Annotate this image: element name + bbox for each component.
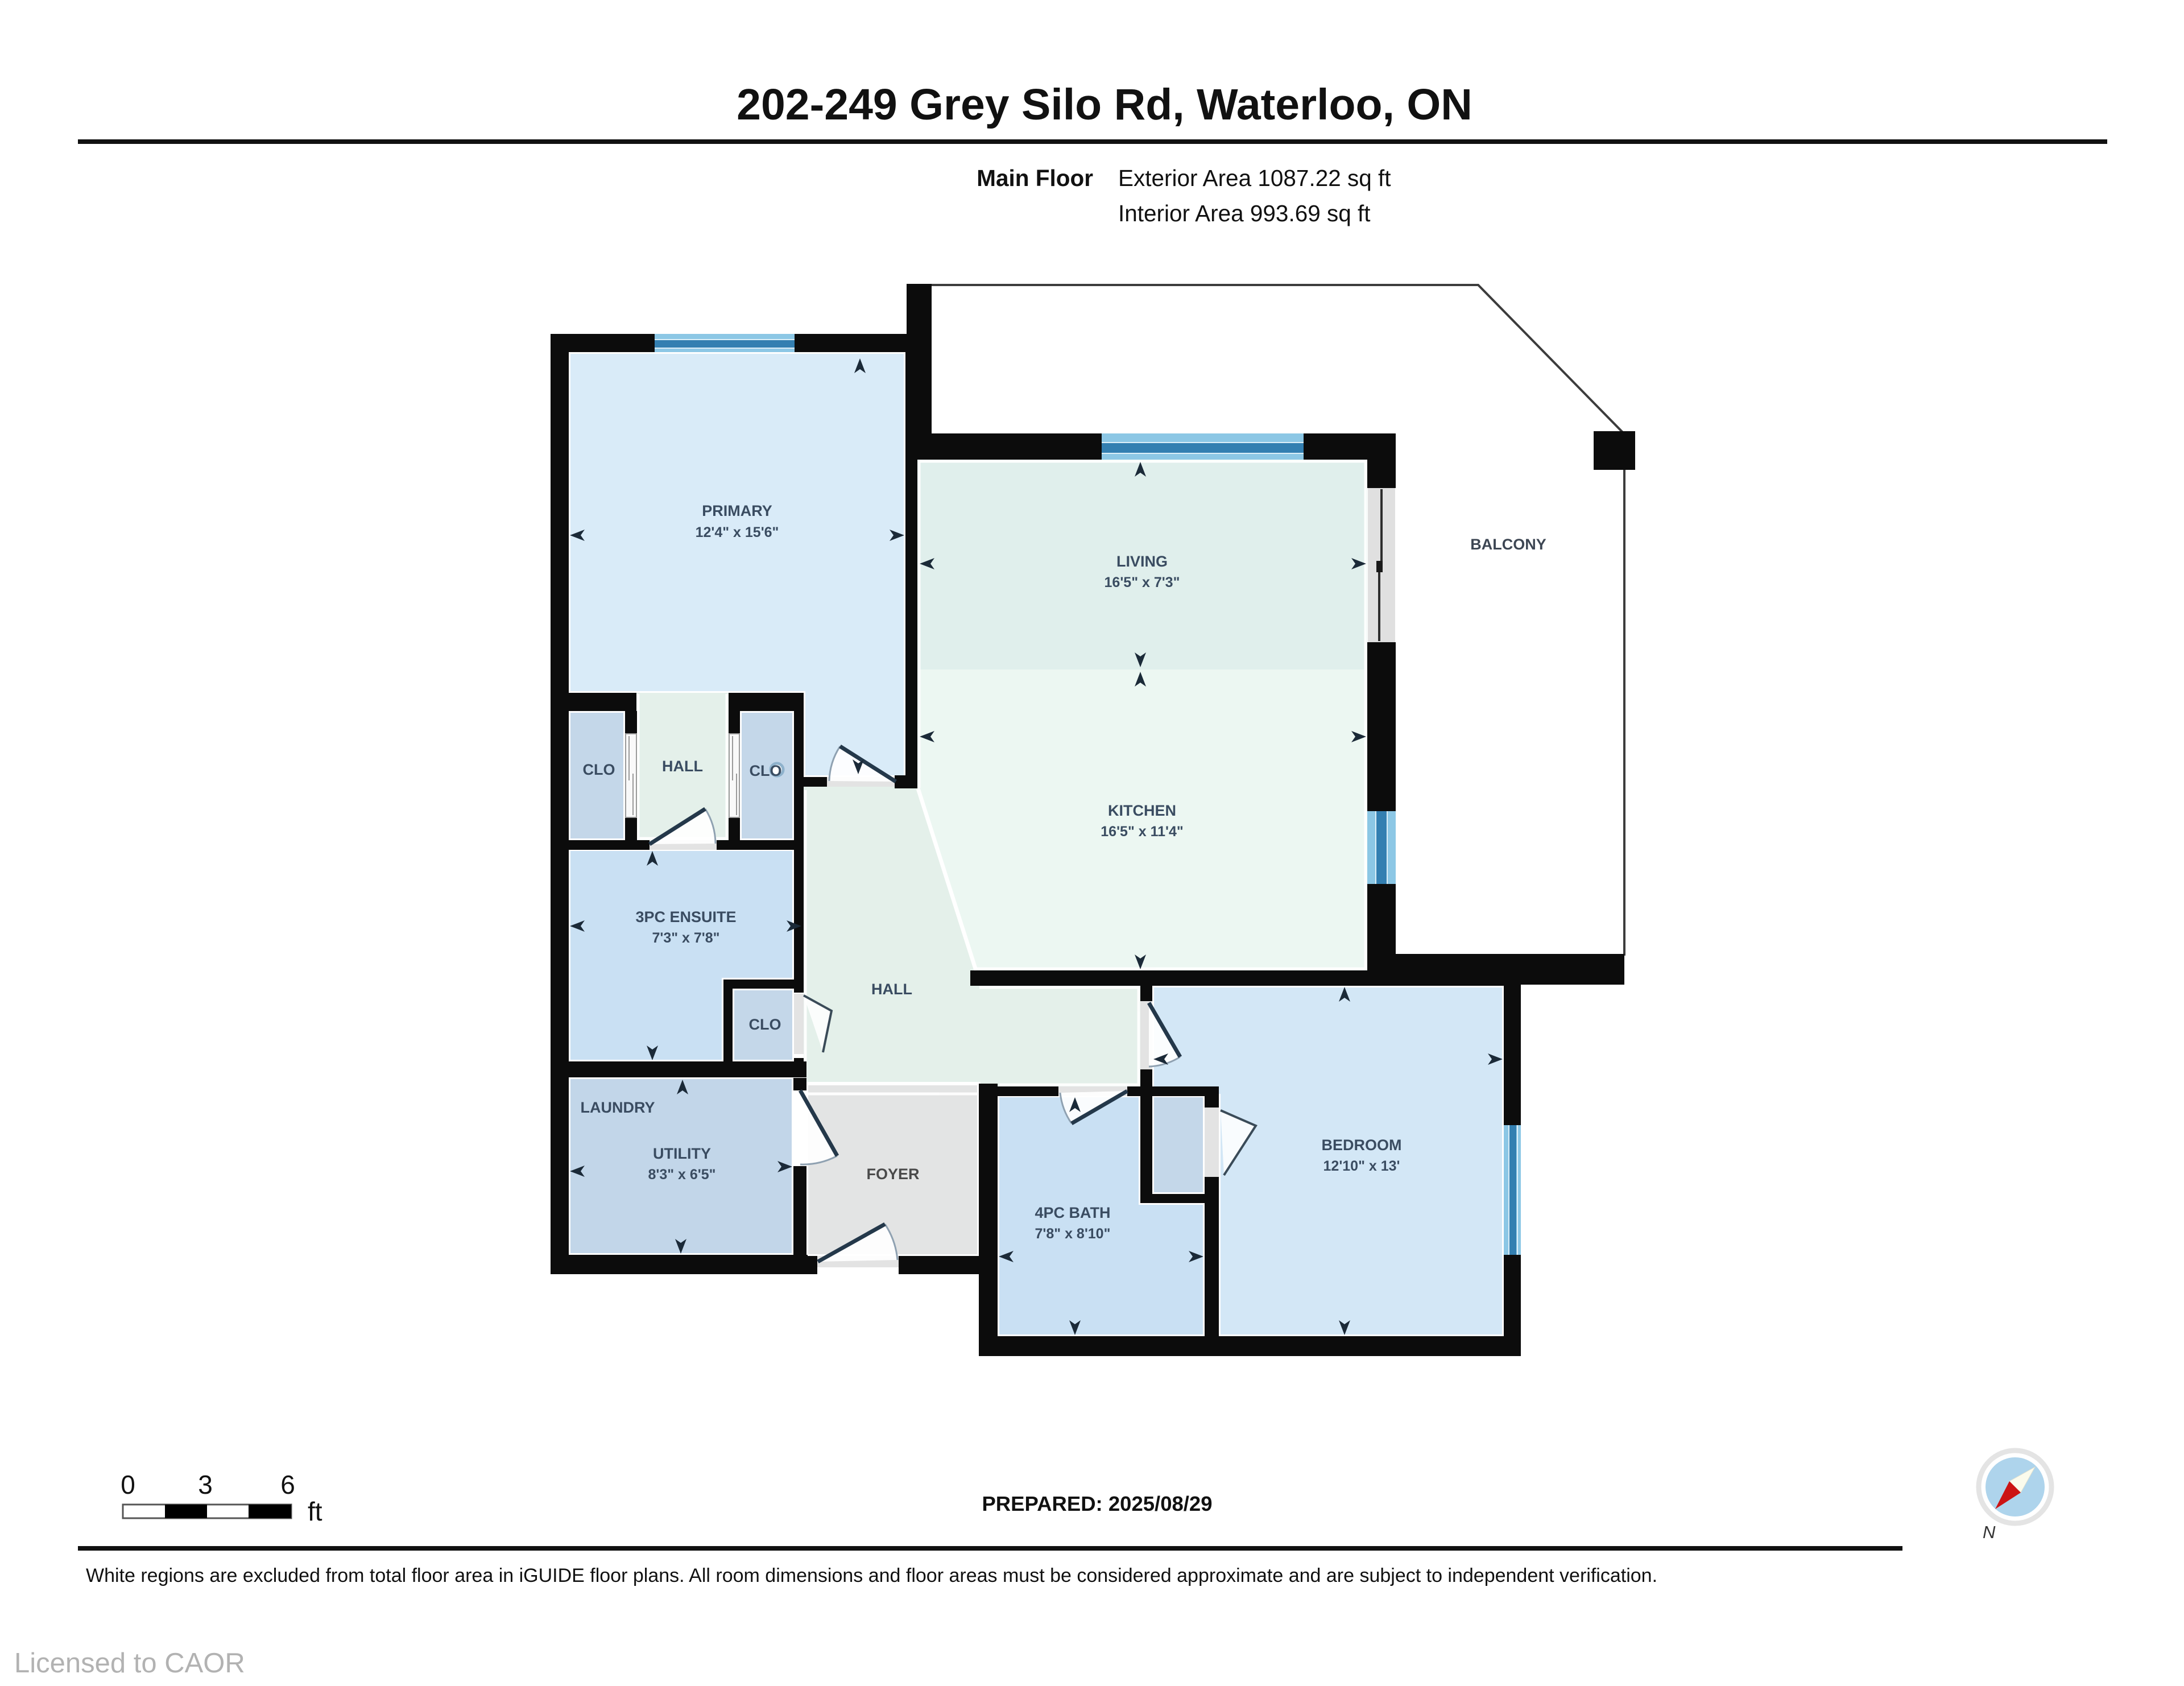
svg-text:202-249 Grey Silo Rd, Waterloo: 202-249 Grey Silo Rd, Waterloo, ON	[737, 80, 1472, 129]
svg-text:White regions are excluded fro: White regions are excluded from total fl…	[86, 1565, 1657, 1586]
svg-text:PREPARED: 2025/08/29: PREPARED: 2025/08/29	[982, 1492, 1212, 1515]
svg-text:8'3" x 6'5": 8'3" x 6'5"	[648, 1167, 715, 1183]
svg-text:ft: ft	[308, 1497, 322, 1526]
svg-text:HALL: HALL	[871, 981, 912, 998]
svg-text:3PC ENSUITE: 3PC ENSUITE	[635, 908, 736, 925]
svg-text:Main Floor: Main Floor	[977, 165, 1093, 191]
svg-text:Licensed to CAOR: Licensed to CAOR	[14, 1648, 245, 1679]
svg-text:Exterior Area 1087.22 sq ft: Exterior Area 1087.22 sq ft	[1118, 165, 1391, 191]
svg-text:BALCONY: BALCONY	[1470, 536, 1546, 553]
svg-text:CLO: CLO	[750, 762, 782, 779]
svg-text:KITCHEN: KITCHEN	[1108, 802, 1176, 819]
svg-text:PRIMARY: PRIMARY	[702, 502, 772, 519]
svg-text:12'4" x 15'6": 12'4" x 15'6"	[696, 524, 779, 540]
svg-text:FOYER: FOYER	[866, 1166, 919, 1183]
svg-text:LIVING: LIVING	[1116, 553, 1168, 570]
svg-text:12'10" x 13': 12'10" x 13'	[1323, 1158, 1400, 1174]
svg-text:UTILITY: UTILITY	[653, 1145, 711, 1162]
svg-text:Interior Area 993.69 sq ft: Interior Area 993.69 sq ft	[1118, 200, 1371, 226]
svg-text:7'8" x 8'10": 7'8" x 8'10"	[1035, 1226, 1111, 1242]
svg-text:0: 0	[121, 1470, 135, 1499]
svg-text:CLO: CLO	[583, 761, 615, 778]
svg-text:4PC BATH: 4PC BATH	[1035, 1204, 1110, 1221]
svg-text:HALL: HALL	[662, 758, 703, 775]
svg-text:7'3" x 7'8": 7'3" x 7'8"	[652, 930, 719, 946]
svg-text:CLO: CLO	[749, 1016, 781, 1033]
svg-text:BEDROOM: BEDROOM	[1322, 1137, 1402, 1154]
svg-text:3: 3	[198, 1470, 213, 1499]
svg-text:N: N	[1983, 1522, 1996, 1542]
svg-text:16'5" x 7'3": 16'5" x 7'3"	[1105, 575, 1180, 590]
svg-text:LAUNDRY: LAUNDRY	[581, 1099, 655, 1116]
svg-text:16'5" x 11'4": 16'5" x 11'4"	[1101, 824, 1183, 840]
svg-text:6: 6	[280, 1470, 295, 1499]
